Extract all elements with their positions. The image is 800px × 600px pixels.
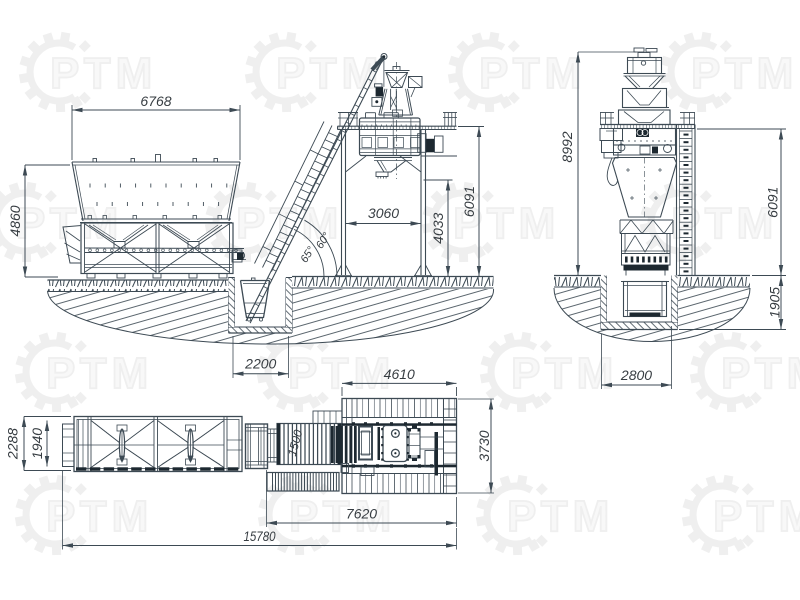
- svg-text:3060: 3060: [368, 205, 399, 221]
- svg-text:2800: 2800: [620, 367, 652, 383]
- svg-text:15780: 15780: [244, 528, 276, 544]
- svg-text:3730: 3730: [476, 430, 492, 461]
- svg-text:4033: 4033: [430, 212, 446, 243]
- svg-text:8992: 8992: [559, 131, 575, 162]
- svg-text:4610: 4610: [384, 366, 415, 382]
- svg-text:2288: 2288: [5, 428, 21, 460]
- svg-text:6091: 6091: [765, 187, 781, 218]
- svg-text:4860: 4860: [7, 205, 23, 236]
- svg-text:1905: 1905: [767, 287, 783, 318]
- svg-text:6091: 6091: [461, 186, 477, 217]
- svg-text:7620: 7620: [346, 506, 377, 522]
- svg-text:2200: 2200: [244, 356, 276, 372]
- svg-text:1940: 1940: [29, 428, 45, 459]
- svg-text:6768: 6768: [140, 93, 171, 109]
